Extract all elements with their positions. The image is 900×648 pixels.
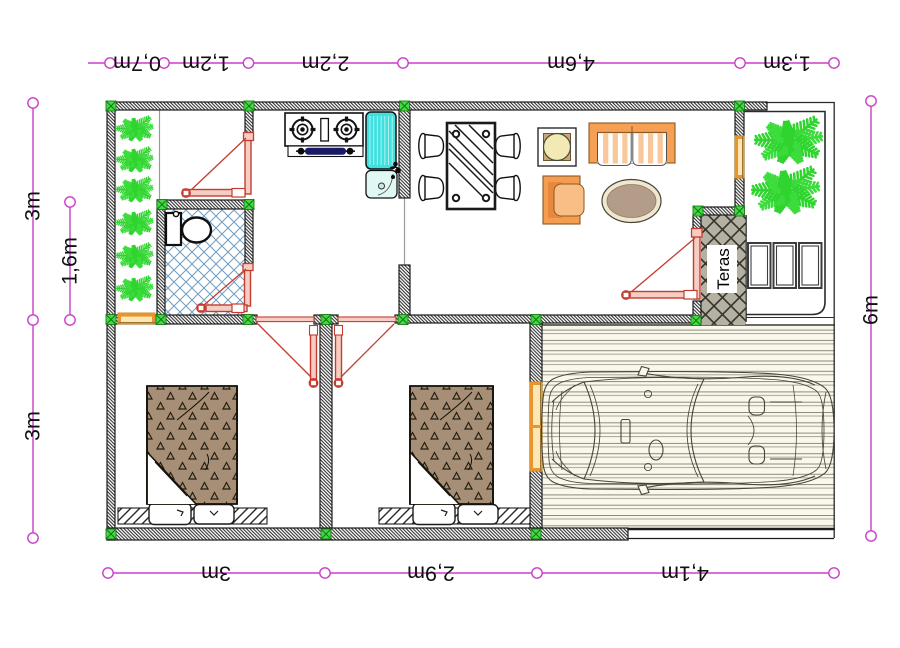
svg-text:4,6m: 4,6m: [547, 52, 595, 76]
svg-text:2,2m: 2,2m: [302, 52, 350, 76]
svg-text:0,7m: 0,7m: [113, 52, 161, 76]
svg-text:1,2m: 1,2m: [182, 52, 230, 76]
svg-text:2,9m: 2,9m: [407, 562, 455, 586]
svg-text:3m: 3m: [21, 191, 45, 221]
svg-text:3m: 3m: [201, 562, 231, 586]
svg-text:Teras: Teras: [714, 248, 733, 290]
svg-text:3m: 3m: [21, 411, 45, 441]
svg-text:1,3m: 1,3m: [763, 52, 811, 76]
svg-text:4,1m: 4,1m: [661, 562, 709, 586]
svg-text:6m: 6m: [859, 295, 883, 325]
svg-text:1,6m: 1,6m: [58, 237, 82, 285]
